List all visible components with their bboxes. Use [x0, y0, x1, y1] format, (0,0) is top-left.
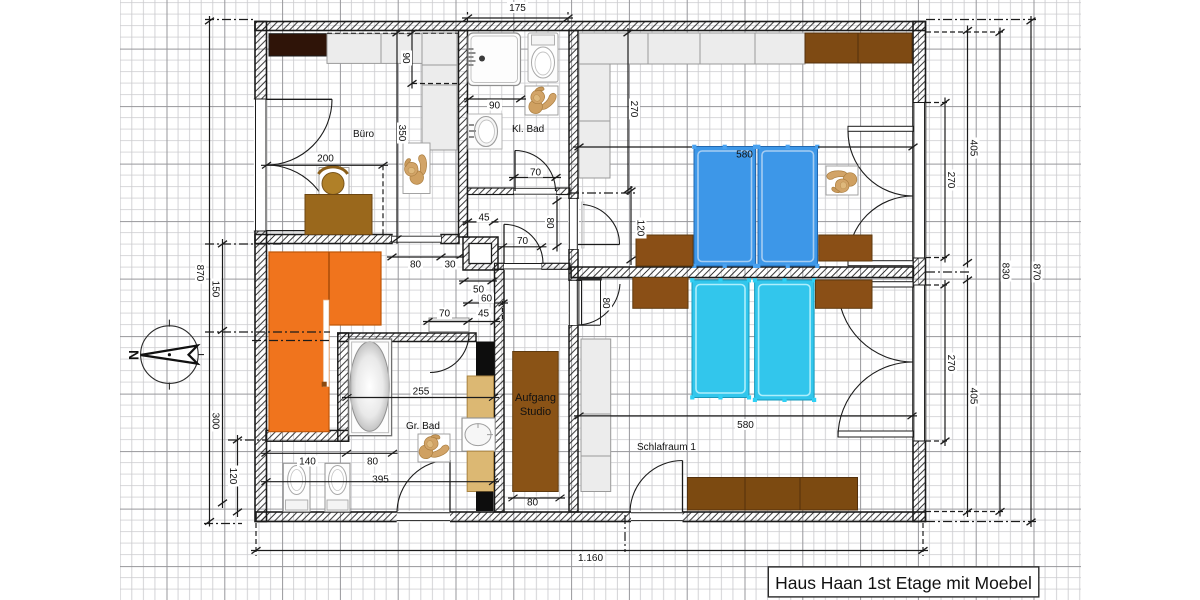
svg-text:Studio: Studio: [520, 406, 551, 418]
svg-text:120: 120: [227, 468, 238, 485]
svg-text:80: 80: [544, 217, 555, 229]
svg-text:45: 45: [478, 213, 490, 224]
svg-text:80: 80: [600, 297, 611, 309]
svg-text:Haus Haan 1st Etage mit Moebel: Haus Haan 1st Etage mit Moebel: [775, 573, 1032, 593]
svg-text:70: 70: [517, 236, 529, 247]
svg-text:830: 830: [1000, 263, 1011, 280]
svg-text:70: 70: [439, 309, 451, 320]
svg-text:870: 870: [194, 265, 205, 282]
svg-text:300: 300: [210, 413, 221, 430]
svg-text:405: 405: [968, 388, 979, 405]
svg-text:255: 255: [413, 387, 430, 398]
svg-text:Büro: Büro: [353, 129, 375, 140]
svg-text:80: 80: [367, 457, 379, 468]
svg-text:80: 80: [410, 260, 422, 271]
svg-text:80: 80: [527, 498, 539, 509]
svg-text:270: 270: [628, 101, 639, 118]
svg-text:90: 90: [489, 101, 501, 112]
svg-text:395: 395: [372, 475, 389, 486]
svg-text:70: 70: [530, 168, 542, 179]
svg-text:Gr. Bad: Gr. Bad: [406, 421, 440, 432]
svg-text:Kl. Bad: Kl. Bad: [512, 124, 544, 135]
svg-text:Aufgang: Aufgang: [515, 392, 556, 404]
svg-text:270: 270: [945, 355, 956, 372]
svg-text:175: 175: [509, 3, 526, 14]
svg-text:405: 405: [968, 140, 979, 157]
svg-text:60: 60: [481, 294, 493, 305]
svg-text:580: 580: [736, 150, 753, 161]
svg-text:120: 120: [635, 220, 646, 237]
svg-text:150: 150: [210, 281, 221, 298]
svg-text:Schlafraum 1: Schlafraum 1: [637, 442, 696, 453]
svg-text:45: 45: [478, 309, 490, 320]
svg-text:580: 580: [737, 420, 754, 431]
svg-text:200: 200: [317, 154, 334, 165]
svg-text:270: 270: [945, 172, 956, 189]
svg-text:1.160: 1.160: [578, 553, 603, 564]
svg-text:870: 870: [1031, 264, 1042, 281]
svg-text:90: 90: [400, 52, 411, 64]
svg-text:140: 140: [299, 457, 316, 468]
svg-text:30: 30: [444, 260, 456, 271]
svg-text:N: N: [126, 350, 142, 360]
svg-text:350: 350: [396, 125, 407, 142]
